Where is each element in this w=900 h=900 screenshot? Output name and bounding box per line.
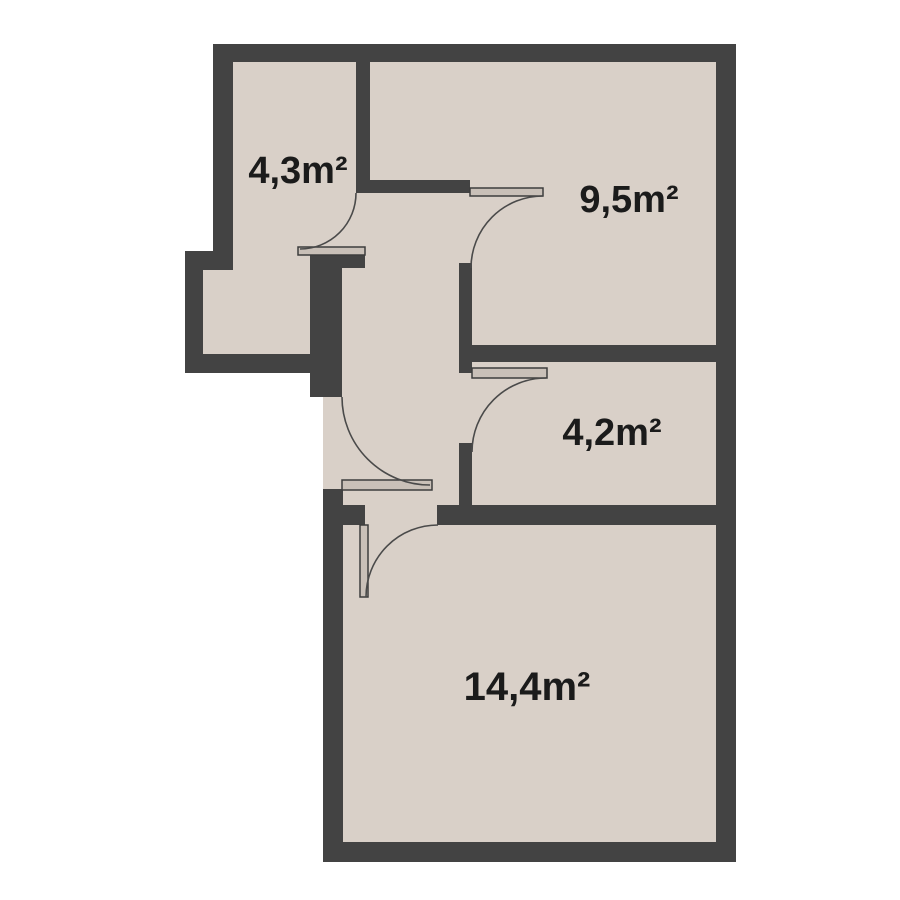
wall-hall-north: [356, 180, 470, 193]
wall-outer-right: [716, 44, 736, 862]
wall-room3-room4-divider: [437, 505, 716, 525]
wall-hall-west: [310, 255, 342, 397]
wall-outer-left-upper: [213, 44, 233, 270]
floor-plan-page: 4,3m² 9,5m² 4,2m² 14,4m²: [0, 0, 900, 900]
wall-room4-door-stub: [340, 505, 365, 525]
door-room3-leaf: [472, 368, 547, 378]
door-room2-leaf: [470, 188, 543, 196]
wall-room1-door-stub: [310, 255, 365, 268]
room-area-label-top-left: 4,3m²: [248, 150, 347, 192]
wall-outer-bottom: [323, 842, 736, 862]
room-area-label-bottom: 14,4m²: [464, 665, 591, 709]
room-area-label-top-right: 9,5m²: [579, 179, 678, 221]
wall-room1-room2-divider: [356, 62, 370, 193]
wall-room2-room3-divider: [459, 345, 716, 362]
wall-outer-top: [213, 44, 736, 62]
room-area-label-middle-right: 4,2m²: [562, 412, 661, 454]
wall-outer-left-lower: [323, 489, 343, 842]
floor-plan-svg: 4,3m² 9,5m² 4,2m² 14,4m²: [0, 0, 900, 900]
